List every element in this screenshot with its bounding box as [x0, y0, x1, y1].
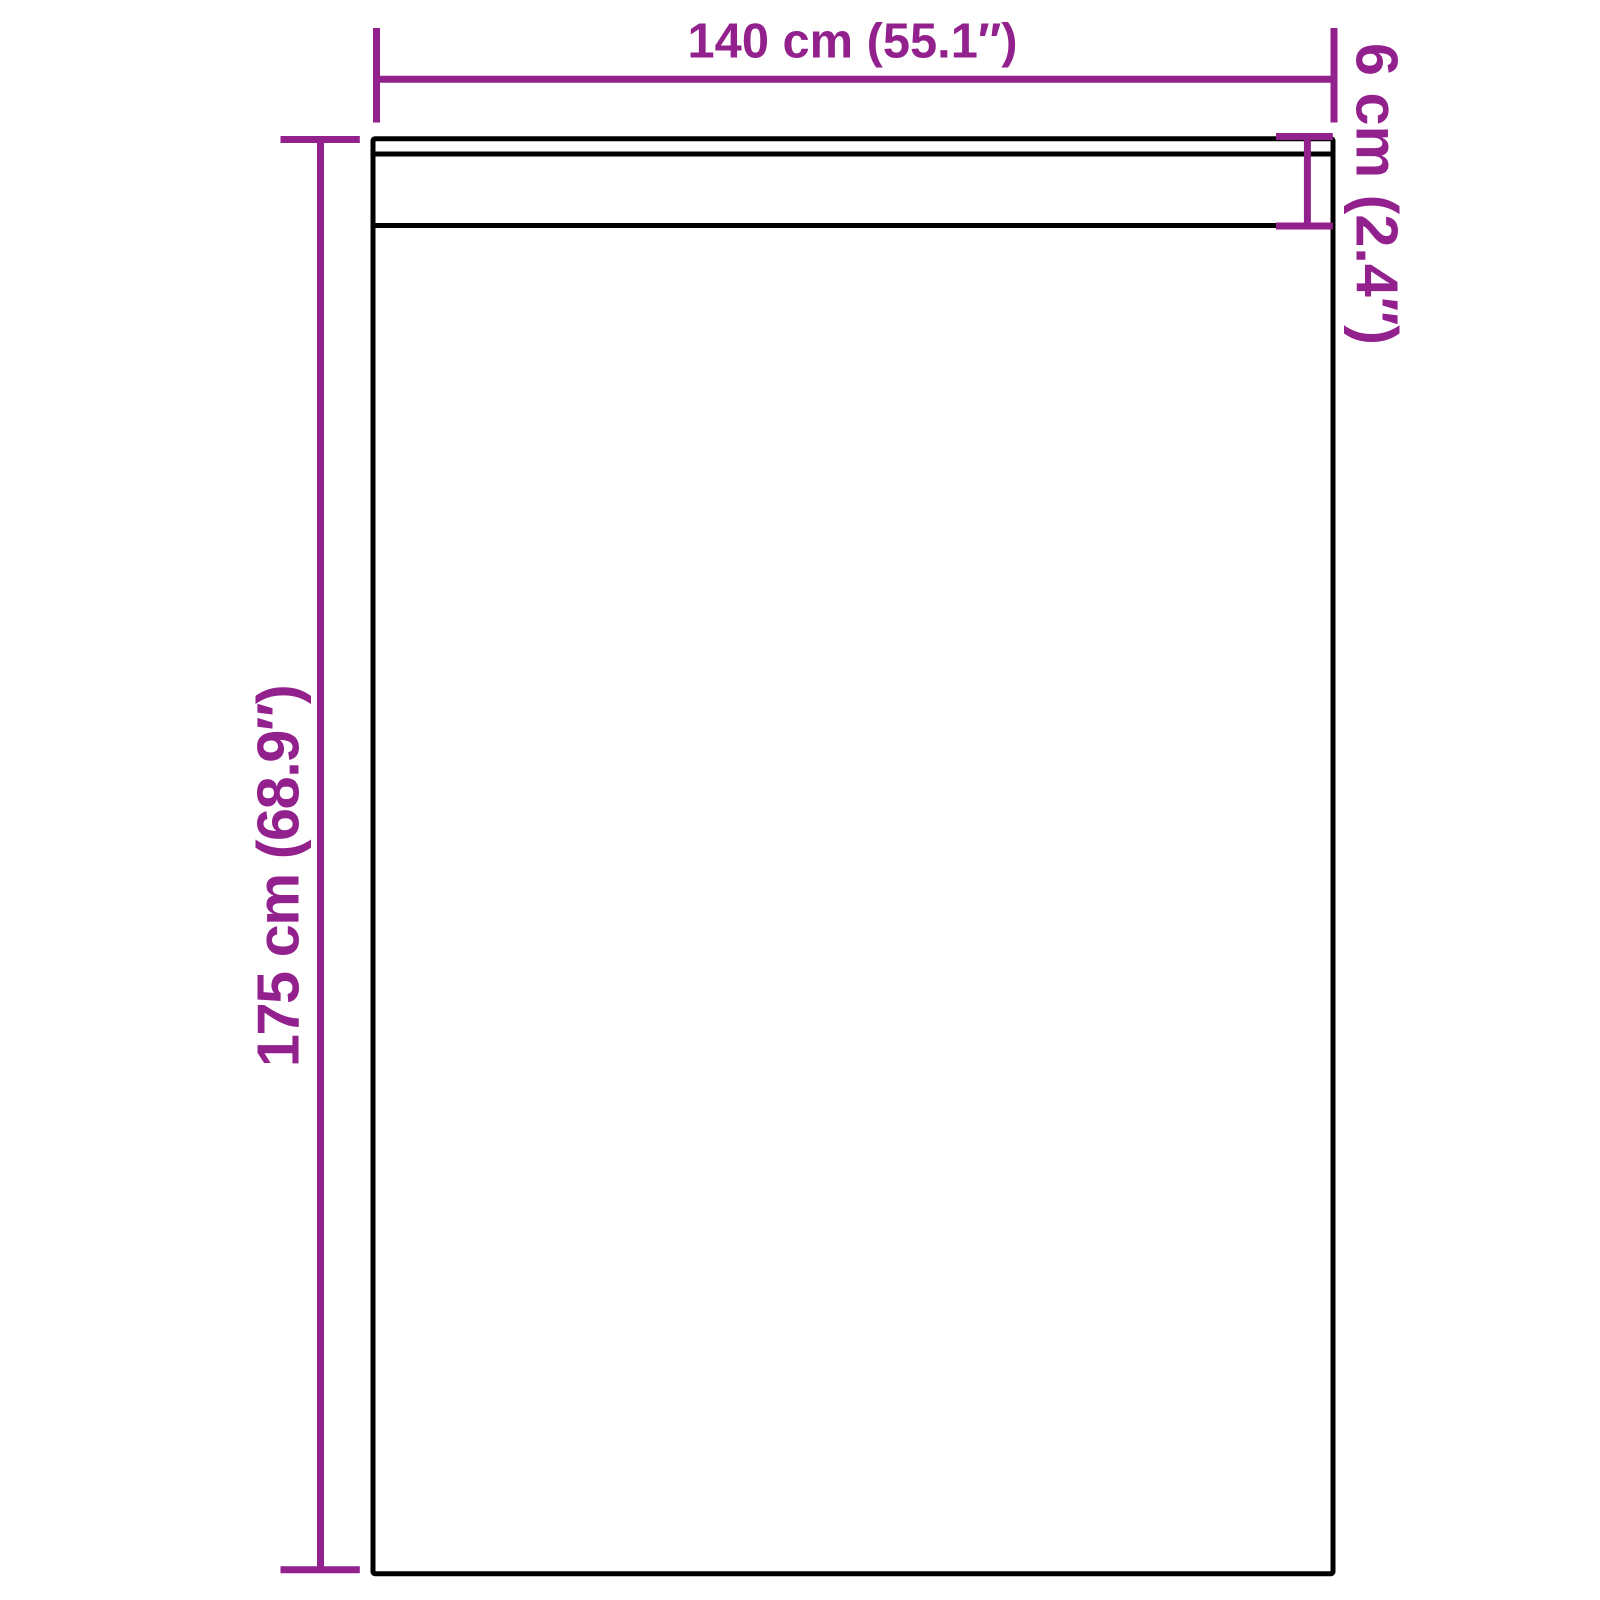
svg-text:140 cm (55.1″): 140 cm (55.1″) — [688, 15, 1018, 69]
svg-text:175 cm (68.9″): 175 cm (68.9″) — [245, 686, 312, 1067]
svg-text:6 cm (2.4″): 6 cm (2.4″) — [1344, 43, 1411, 345]
